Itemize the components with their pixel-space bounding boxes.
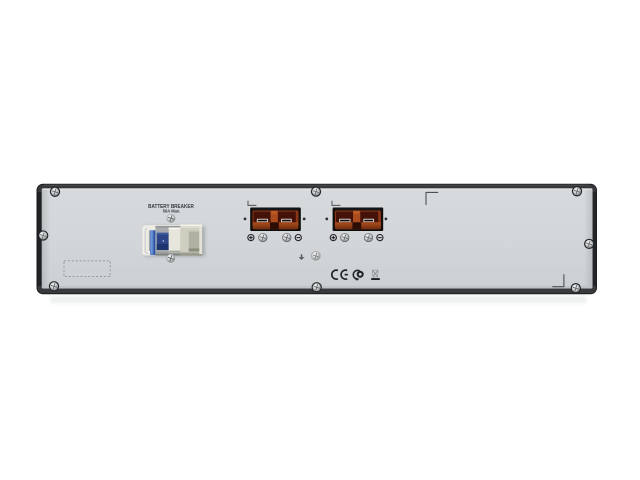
svg-text:50A Max.: 50A Max. [163,209,181,214]
